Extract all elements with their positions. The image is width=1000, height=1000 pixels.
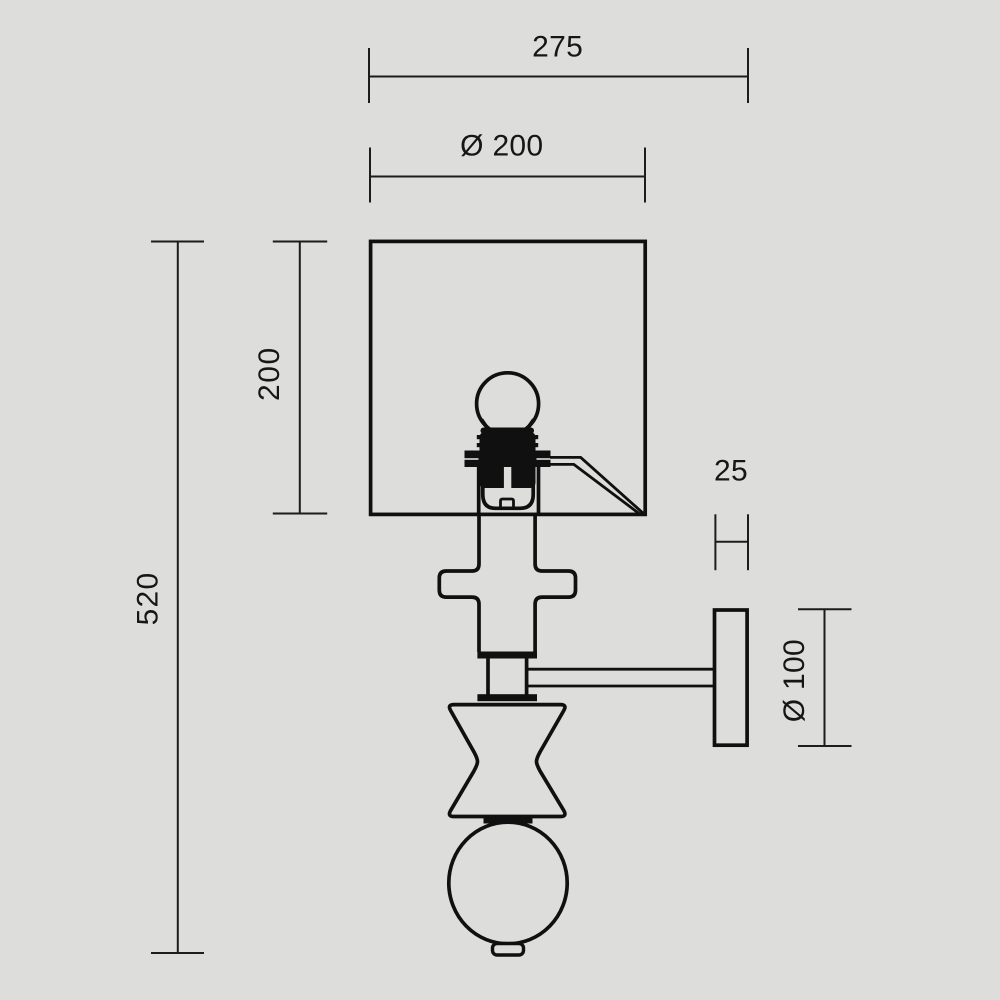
svg-text:25: 25: [714, 454, 748, 487]
svg-text:Ø 100: Ø 100: [778, 639, 811, 722]
svg-text:Ø 200: Ø 200: [460, 130, 543, 163]
svg-text:200: 200: [253, 346, 286, 401]
svg-text:275: 275: [532, 31, 583, 64]
svg-text:520: 520: [132, 572, 165, 626]
